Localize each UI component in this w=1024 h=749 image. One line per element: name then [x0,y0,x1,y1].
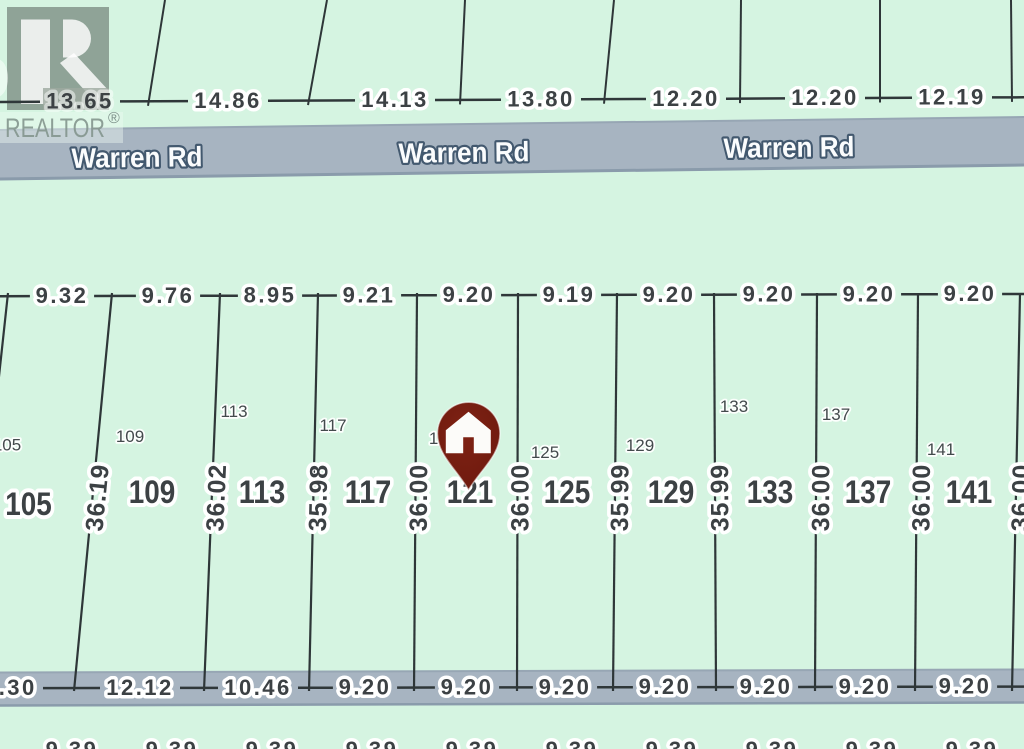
svg-text:9.20: 9.20 [839,674,892,699]
svg-text:9.19: 9.19 [543,282,596,307]
svg-text:9.39: 9.39 [346,737,399,749]
svg-text:12.20: 12.20 [652,86,720,111]
svg-text:REALTOR: REALTOR [5,113,105,143]
svg-text:Warren Rd: Warren Rd [723,131,854,164]
svg-text:9.20: 9.20 [441,675,494,700]
svg-text:Warren Rd: Warren Rd [71,141,202,174]
svg-text:9.39: 9.39 [746,737,799,749]
svg-text:36.00: 36.00 [807,464,835,532]
svg-text:9.39: 9.39 [246,737,299,749]
svg-text:9.20: 9.20 [539,674,592,699]
svg-text:10.46: 10.46 [224,675,292,700]
svg-text:133: 133 [747,474,794,510]
svg-text:9.20: 9.20 [944,281,997,306]
svg-text:36.00: 36.00 [506,464,534,532]
svg-text:9.20: 9.20 [743,282,796,307]
svg-text:9.20: 9.20 [443,282,496,307]
svg-text:105: 105 [5,486,52,522]
svg-text:12.12: 12.12 [106,675,174,700]
svg-text:36.02: 36.02 [201,463,232,532]
svg-text:9.20: 9.20 [740,674,793,699]
svg-text:105: 105 [0,436,21,455]
svg-text:141: 141 [927,440,955,459]
svg-text:109: 109 [116,427,144,446]
svg-text:35.99: 35.99 [606,464,635,532]
svg-text:133: 133 [720,397,748,416]
svg-text:129: 129 [626,436,654,455]
svg-text:9.39: 9.39 [446,737,499,749]
svg-text:Warren Rd: Warren Rd [398,136,529,169]
svg-text:14.13: 14.13 [361,87,429,112]
svg-text:125: 125 [544,474,591,510]
svg-text:13.80: 13.80 [507,87,575,112]
svg-text:12.30: 12.30 [0,675,37,700]
svg-text:137: 137 [822,405,850,424]
svg-text:117: 117 [345,474,392,510]
svg-text:9.76: 9.76 [142,283,195,308]
svg-text:8.95: 8.95 [244,283,297,308]
svg-text:35.99: 35.99 [706,464,734,532]
svg-text:129: 129 [648,474,695,510]
svg-text:12.20: 12.20 [791,85,859,110]
svg-text:113: 113 [220,402,247,421]
svg-text:36.00: 36.00 [907,464,936,532]
svg-text:13.65: 13.65 [46,89,114,114]
svg-text:9.20: 9.20 [939,674,992,699]
svg-text:9.39: 9.39 [46,737,99,749]
svg-text:9.39: 9.39 [946,737,999,749]
svg-text:141: 141 [946,474,993,510]
svg-text:36.00: 36.00 [405,464,433,532]
svg-text:9.32: 9.32 [36,283,89,308]
svg-text:36.00: 36.00 [1006,463,1024,531]
svg-text:9.20: 9.20 [643,282,696,307]
svg-text:14.86: 14.86 [194,88,262,113]
svg-text:9.39: 9.39 [646,737,699,749]
svg-text:9.39: 9.39 [546,737,599,749]
svg-text:109: 109 [129,474,176,510]
svg-text:9.39: 9.39 [846,737,899,749]
svg-text:9.20: 9.20 [639,674,692,699]
svg-text:9.20: 9.20 [843,281,896,306]
svg-text:9.39: 9.39 [146,737,199,749]
svg-text:35.98: 35.98 [304,463,334,531]
svg-text:12.19: 12.19 [918,85,986,110]
svg-text:113: 113 [239,474,286,510]
svg-text:9.20: 9.20 [339,675,392,700]
svg-text:117: 117 [319,416,346,435]
svg-text:125: 125 [531,443,559,462]
svg-text:137: 137 [845,474,892,510]
svg-text:9.21: 9.21 [343,282,396,307]
